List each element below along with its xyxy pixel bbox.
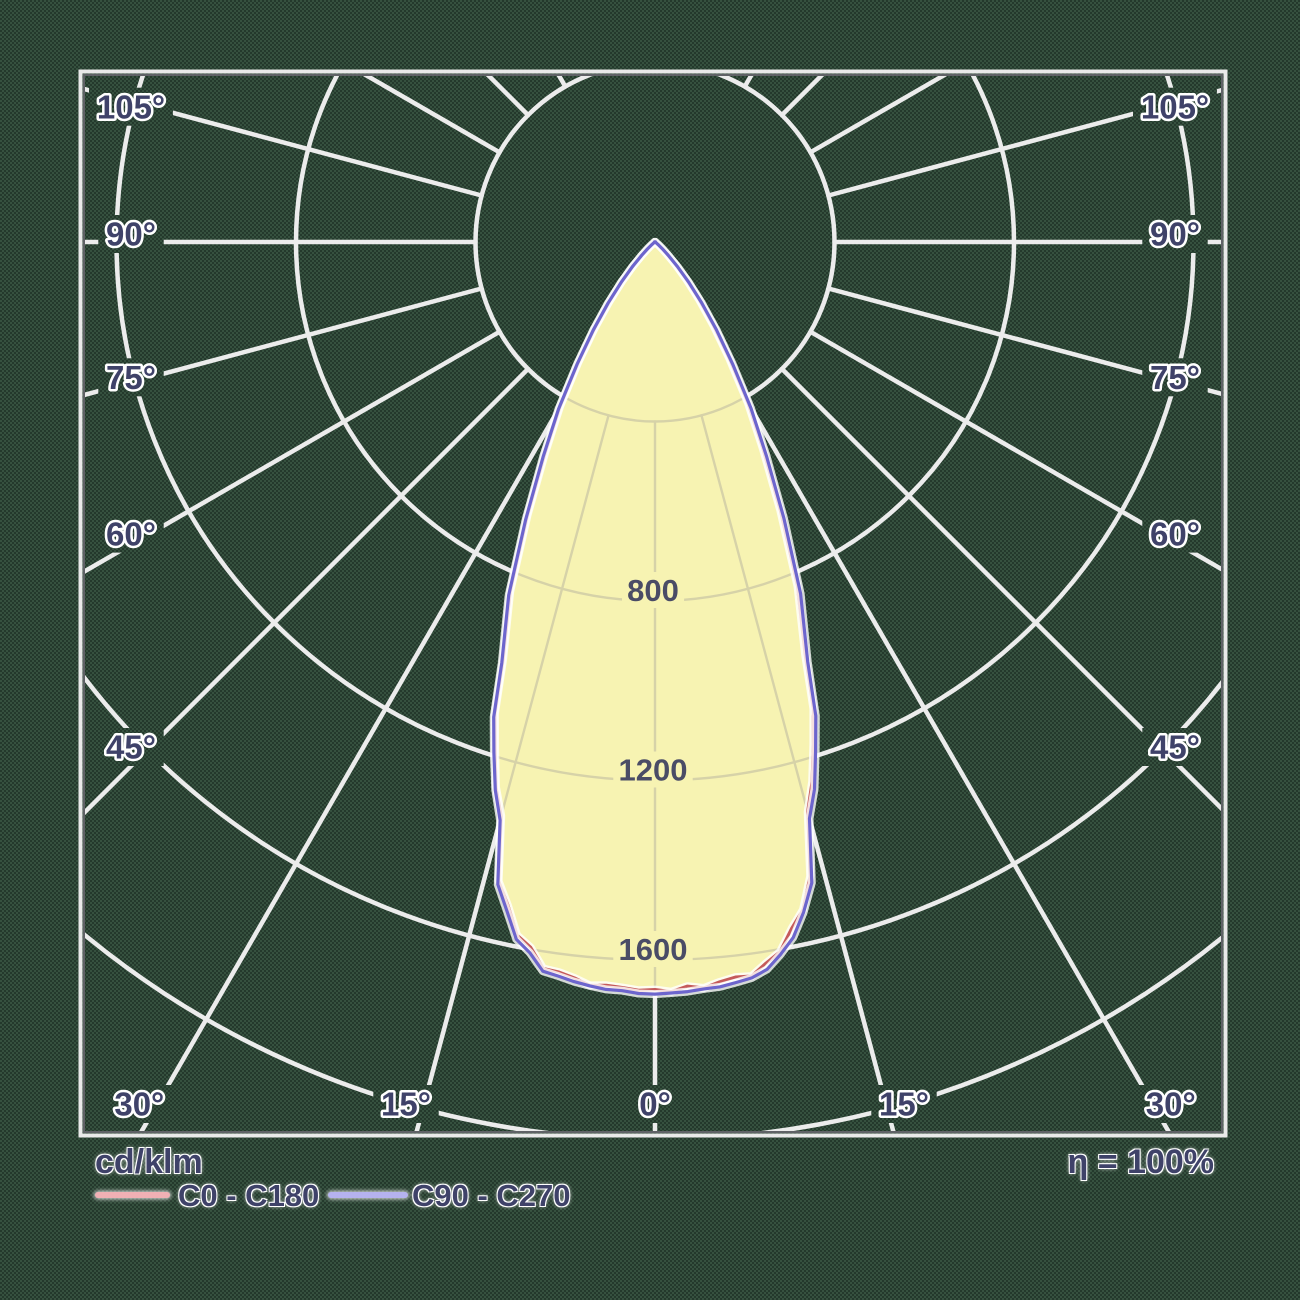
grid-ray: [828, 289, 1300, 631]
grid-ray: [745, 0, 1300, 87]
grid-ray: [0, 289, 482, 631]
grid-ray: [0, 332, 500, 992]
grid-ray: [702, 0, 1044, 69]
grid-ray: [828, 0, 1300, 196]
grid-ray: [702, 0, 1044, 69]
angle-label-right: 60°: [1150, 515, 1200, 552]
angle-label-left: 90°: [106, 216, 156, 253]
ring-label: 1200: [619, 753, 688, 788]
grid-ray: [0, 0, 565, 87]
grid-ray: [0, 332, 500, 992]
angle-label-left: 45°: [106, 729, 156, 766]
c90-c270-swatch: [328, 1192, 408, 1198]
grid-ray: [267, 0, 609, 69]
angle-label-right: 105°: [1141, 88, 1209, 125]
grid-ray: [0, 289, 482, 631]
angle-label-bottom: 15°: [381, 1086, 431, 1123]
angle-label-right: 75°: [1150, 359, 1200, 396]
c90-c270-label: C90 - C270: [412, 1178, 571, 1214]
angle-label-left: 60°: [106, 515, 156, 552]
angle-label-left: 105°: [97, 88, 165, 125]
grid-ray: [0, 0, 500, 152]
angle-label-left: 75°: [106, 359, 156, 396]
angle-label-right: 90°: [1150, 216, 1200, 253]
photometric-diagram: 105°90°75°60°45°105°90°75°60°45°30°15°0°…: [0, 0, 1300, 1300]
grid-ray: [745, 398, 1300, 1300]
polar-chart: 105°90°75°60°45°105°90°75°60°45°30°15°0°…: [0, 0, 1300, 1300]
grid-ray: [828, 0, 1300, 196]
angle-label-bottom: 0°: [639, 1086, 671, 1123]
grid-ray: [267, 0, 609, 69]
ring-label: 800: [627, 573, 679, 608]
grid-ray: [828, 289, 1300, 631]
ring-label: 1600: [619, 932, 688, 967]
c0-c180-label: C0 - C180: [178, 1178, 319, 1214]
angle-label-bottom: 15°: [879, 1086, 929, 1123]
angle-label-bottom: 30°: [1146, 1086, 1196, 1123]
angle-label-bottom: 30°: [114, 1086, 164, 1123]
grid-ray: [745, 0, 1300, 87]
c0-c180-swatch: [95, 1192, 170, 1198]
angle-label-right: 45°: [1150, 729, 1200, 766]
efficiency-label: η = 100%: [1068, 1143, 1214, 1182]
grid-ray: [0, 0, 565, 87]
grid-ray: [0, 0, 500, 152]
unit-label: cd/klm: [95, 1143, 203, 1182]
grid-ray: [745, 398, 1300, 1300]
